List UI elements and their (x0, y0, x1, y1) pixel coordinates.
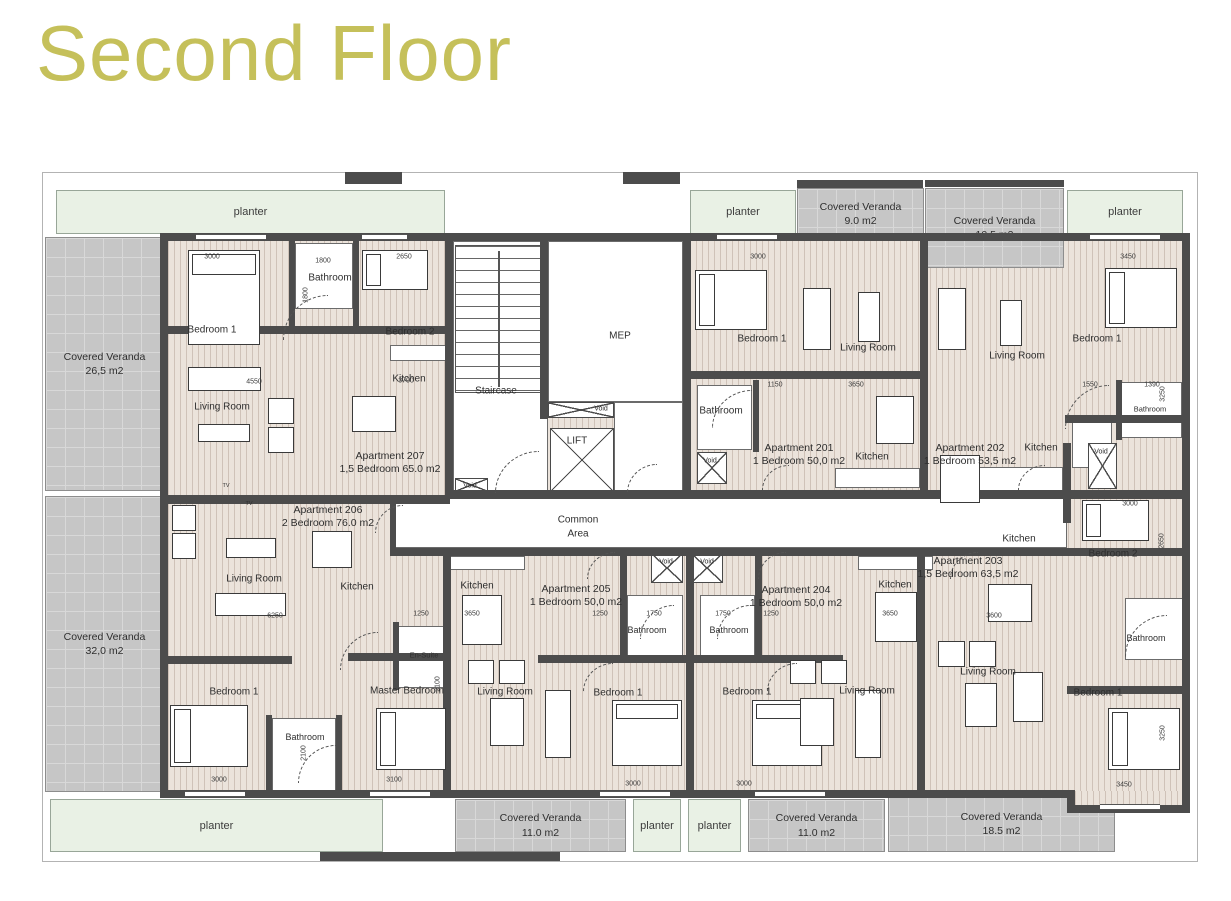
dimension-label: 2100 (301, 745, 308, 761)
wall (623, 172, 680, 184)
wall (691, 371, 928, 379)
apartment-number: Apartment 204 (750, 584, 842, 597)
shaft-x-symbol (691, 553, 723, 583)
sofa (545, 690, 571, 758)
room-label: Bathroom (709, 625, 748, 635)
chair (268, 398, 294, 424)
apartment-label: Apartment 2011 Bedroom 50,0 m2 (753, 442, 845, 468)
apartment-size: 1 Bedroom 50,0 m2 (750, 597, 842, 610)
dimension-label: 3600 (986, 613, 1002, 620)
floor-plan-page: Second Floor planterplanterplanterplante… (0, 0, 1231, 901)
dimension-label: 3450 (1116, 782, 1132, 789)
dimension-label: 1150 (767, 382, 782, 389)
stair-rail (498, 251, 500, 387)
bed-pillow (1109, 272, 1125, 324)
veranda-label: Covered Veranda (64, 350, 146, 364)
chair (938, 641, 965, 667)
chair (172, 505, 196, 531)
table (876, 396, 914, 444)
bed-pillow (380, 712, 396, 766)
apartment-size: 1 Bedroom 50,0 m2 (530, 596, 622, 609)
wall (353, 241, 359, 329)
planter-region: planter (688, 799, 741, 852)
room-label: Bathroom (308, 273, 351, 284)
room-label: Area (567, 529, 588, 540)
table (490, 698, 524, 746)
table (1000, 300, 1022, 346)
apartment-size: 1,5 Bedroom 65.0 m2 (340, 463, 441, 476)
apartment-label: Apartment 2041 Bedroom 50,0 m2 (750, 584, 842, 610)
wall (686, 548, 694, 796)
sofa (803, 288, 831, 350)
covered-veranda-region: Covered Veranda10.5 m2 (925, 188, 1064, 268)
dimension-label: 4550 (246, 379, 262, 386)
room-label: Bedroom 1 (188, 325, 237, 336)
planter-label: planter (200, 820, 234, 832)
apartment-number: Apartment 205 (530, 583, 622, 596)
wall (160, 495, 450, 504)
veranda-area: 26,5 m2 (86, 364, 124, 378)
room-label: Bedroom 1 (1074, 688, 1123, 699)
planter-label: planter (640, 820, 674, 832)
room-label: Staircase (475, 386, 517, 397)
apartment-label: Apartment 2051 Bedroom 50,0 m2 (530, 583, 622, 609)
dimension-label: 3450 (1120, 254, 1136, 261)
dimension-label: 3700 (398, 378, 414, 385)
veranda-area: 11.0 m2 (798, 826, 835, 840)
room-label: Living Room (226, 574, 282, 585)
table (462, 595, 502, 645)
apartment-number: Apartment 207 (340, 450, 441, 463)
planter-label: planter (726, 206, 760, 218)
room-label: Kitchen (460, 581, 493, 592)
bed (376, 708, 446, 770)
dimension-label: 1750 (646, 611, 662, 618)
wall (1182, 233, 1190, 811)
chair (969, 641, 996, 667)
window-symbol (600, 791, 670, 797)
room-label: Kitchen (340, 582, 373, 593)
apartment-size: 1 Bedroom 53,5 m2 (924, 455, 1016, 468)
window-symbol (1090, 234, 1160, 240)
veranda-area: 11.0 m2 (522, 826, 559, 840)
wall (160, 656, 292, 664)
sofa (855, 690, 881, 758)
room-label: Living Room (960, 667, 1016, 678)
room-area (395, 498, 1067, 548)
table (312, 531, 352, 568)
veranda-area: 18.5 m2 (983, 824, 1021, 838)
dimension-label: 3000 (750, 254, 766, 261)
apartment-size: 2 Bedroom 76.0 m2 (282, 517, 374, 530)
wall (538, 655, 691, 663)
void-label: Void (703, 458, 717, 465)
bed (1082, 500, 1149, 541)
table (800, 698, 834, 746)
wall (390, 548, 1190, 556)
bed-pillow (174, 709, 191, 763)
bed-pillow (192, 254, 256, 275)
room-label: Bedroom 1 (738, 334, 787, 345)
floor-region (1075, 791, 1182, 805)
bed (695, 270, 767, 330)
wall (445, 490, 1190, 499)
table (858, 292, 880, 342)
dimension-label: 3250 (1160, 725, 1167, 741)
chair (499, 660, 525, 684)
dimension-label: 3650 (848, 382, 864, 389)
room-label: Living Room (839, 686, 895, 697)
wall (683, 233, 691, 493)
room-label: Living Room (477, 687, 533, 698)
wall (393, 622, 399, 690)
apartment-label: Apartment 2071,5 Bedroom 65.0 m2 (340, 450, 441, 476)
lift-label: LIFT (567, 436, 588, 447)
room-label: Bathroom (627, 625, 666, 635)
room-label: Kitchen (878, 580, 911, 591)
bed (612, 700, 682, 766)
room-label: Bathroom (699, 406, 742, 417)
wall (345, 172, 402, 184)
wall (160, 233, 1190, 241)
veranda-label: Covered Veranda (954, 214, 1036, 228)
planter-label: planter (234, 206, 268, 218)
wall (1067, 790, 1075, 811)
dimension-label: 1390 (1144, 382, 1160, 389)
dimension-label: 6250 (267, 613, 283, 620)
table (198, 424, 250, 442)
wall (445, 233, 453, 493)
room-label: Living Room (840, 343, 896, 354)
void-label: Void (659, 559, 673, 566)
veranda-area: 32,0 m2 (86, 644, 124, 658)
window-symbol (370, 791, 430, 797)
room-label: Bathroom (285, 732, 324, 742)
veranda-area: 9.0 m2 (844, 214, 876, 228)
chair (468, 660, 494, 684)
window-symbol (1100, 804, 1160, 810)
room-label: TV (245, 501, 252, 507)
page-title: Second Floor (36, 8, 512, 99)
room-label: Bedroom 2 (386, 327, 435, 338)
apartment-label: Apartment 2021 Bedroom 53,5 m2 (924, 442, 1016, 468)
void-label: Void (594, 406, 608, 413)
dimension-label: 3000 (625, 781, 641, 788)
planter-region: planter (690, 190, 796, 234)
room-label: Bedroom 1 (594, 688, 643, 699)
wall (797, 180, 923, 188)
room-label: Master Bedroom (370, 686, 444, 697)
covered-veranda-region: Covered Veranda32,0 m2 (45, 496, 164, 792)
dimension-label: 3000 (1122, 501, 1138, 508)
dimension-label: 3100 (386, 777, 402, 784)
planter-region: planter (1067, 190, 1183, 234)
dimension-label: 1800 (303, 287, 310, 303)
dimension-label: 1550 (1082, 382, 1098, 389)
room-label: Bathroom (1126, 633, 1165, 643)
window-symbol (196, 234, 266, 240)
chair (821, 660, 847, 684)
wall (1116, 380, 1122, 440)
room-label: Living Room (194, 402, 250, 413)
sofa (1013, 672, 1043, 722)
bed (170, 705, 248, 767)
dimension-label: 3250 (1160, 386, 1167, 402)
window-symbol (755, 791, 825, 797)
dimension-label: 3650 (464, 611, 480, 618)
dimension-label: 3000 (736, 781, 752, 788)
chair (172, 533, 196, 559)
dimension-label: 3650 (882, 611, 898, 618)
apartment-number: Apartment 201 (753, 442, 845, 455)
bed-pillow (366, 254, 381, 286)
covered-veranda-region: Covered Veranda11.0 m2 (455, 799, 626, 852)
dimension-label: 1250 (413, 611, 429, 618)
window-symbol (362, 234, 407, 240)
wall (540, 233, 548, 419)
void-label: Void (463, 483, 477, 490)
dimension-label: 3000 (211, 777, 227, 784)
apartment-size: 1 Bedroom 50,0 m2 (753, 455, 845, 468)
shaft-x-symbol (651, 553, 683, 583)
window-symbol (717, 234, 777, 240)
dimension-label: 2650 (396, 254, 412, 261)
dimension-label: 1250 (763, 611, 779, 618)
chair (268, 427, 294, 453)
planter-region: planter (56, 190, 445, 234)
dimension-label: 2100 (435, 676, 442, 692)
room-label: TV (222, 483, 229, 489)
room-label: Kitchen (1002, 534, 1035, 545)
window-symbol (185, 791, 245, 797)
room-area (390, 345, 448, 361)
dimension-label: 3000 (204, 254, 220, 261)
apartment-number: Apartment 203 (918, 555, 1019, 568)
wall (1063, 443, 1071, 523)
veranda-label: Covered Veranda (500, 811, 582, 825)
wall (336, 715, 342, 791)
void-label: Void (1094, 449, 1108, 456)
room-label: Bedroom 1 (1073, 334, 1122, 345)
room-label: En-Suite (410, 651, 439, 660)
sofa (938, 288, 966, 350)
wall (917, 548, 925, 796)
table (965, 683, 997, 727)
planter-label: planter (698, 820, 732, 832)
room-label: Living Room (989, 351, 1045, 362)
covered-veranda-region: Covered Veranda26,5 m2 (45, 237, 164, 491)
dimension-label: 2650 (1159, 533, 1166, 549)
room-label: Common (558, 515, 599, 526)
room-area (450, 556, 525, 570)
room-label: Bedroom 2 (1089, 549, 1138, 560)
room-label: Bathroom (1134, 405, 1167, 414)
table (352, 396, 396, 432)
veranda-label: Covered Veranda (64, 630, 146, 644)
apartment-number: Apartment 206 (282, 504, 374, 517)
wall (925, 180, 1064, 187)
wall (160, 233, 168, 798)
veranda-label: Covered Veranda (776, 811, 858, 825)
room-area (548, 241, 683, 402)
bed (362, 250, 428, 290)
bed (1108, 708, 1180, 770)
covered-veranda-region: Covered Veranda11.0 m2 (748, 799, 885, 852)
planter-region: planter (633, 799, 681, 852)
room-label: Kitchen (1024, 443, 1057, 454)
veranda-label: Covered Veranda (820, 200, 902, 214)
room-area (835, 468, 920, 488)
apartment-number: Apartment 202 (924, 442, 1016, 455)
room-label: MEP (609, 331, 631, 342)
dimension-label: 1250 (592, 611, 608, 618)
planter-label: planter (1108, 206, 1142, 218)
apartment-size: 1,5 Bedroom 63,5 m2 (918, 568, 1019, 581)
wall (320, 852, 560, 861)
bed-pillow (699, 274, 715, 326)
dimension-label: 1800 (315, 258, 331, 265)
table (226, 538, 276, 558)
wall (266, 715, 272, 791)
bed-pillow (1086, 504, 1101, 537)
dimension-label: 1750 (715, 611, 731, 618)
room-label: Bedroom 1 (723, 687, 772, 698)
bed-pillow (1112, 712, 1128, 766)
void-label: Void (700, 559, 714, 566)
apartment-label: Apartment 2031,5 Bedroom 63,5 m2 (918, 555, 1019, 581)
planter-region: planter (50, 799, 383, 852)
apartment-label: Apartment 2062 Bedroom 76.0 m2 (282, 504, 374, 530)
bed (1105, 268, 1177, 328)
room-label: Bedroom 1 (210, 687, 259, 698)
bed-pillow (616, 704, 678, 719)
room-label: Kitchen (855, 452, 888, 463)
veranda-label: Covered Veranda (961, 810, 1043, 824)
